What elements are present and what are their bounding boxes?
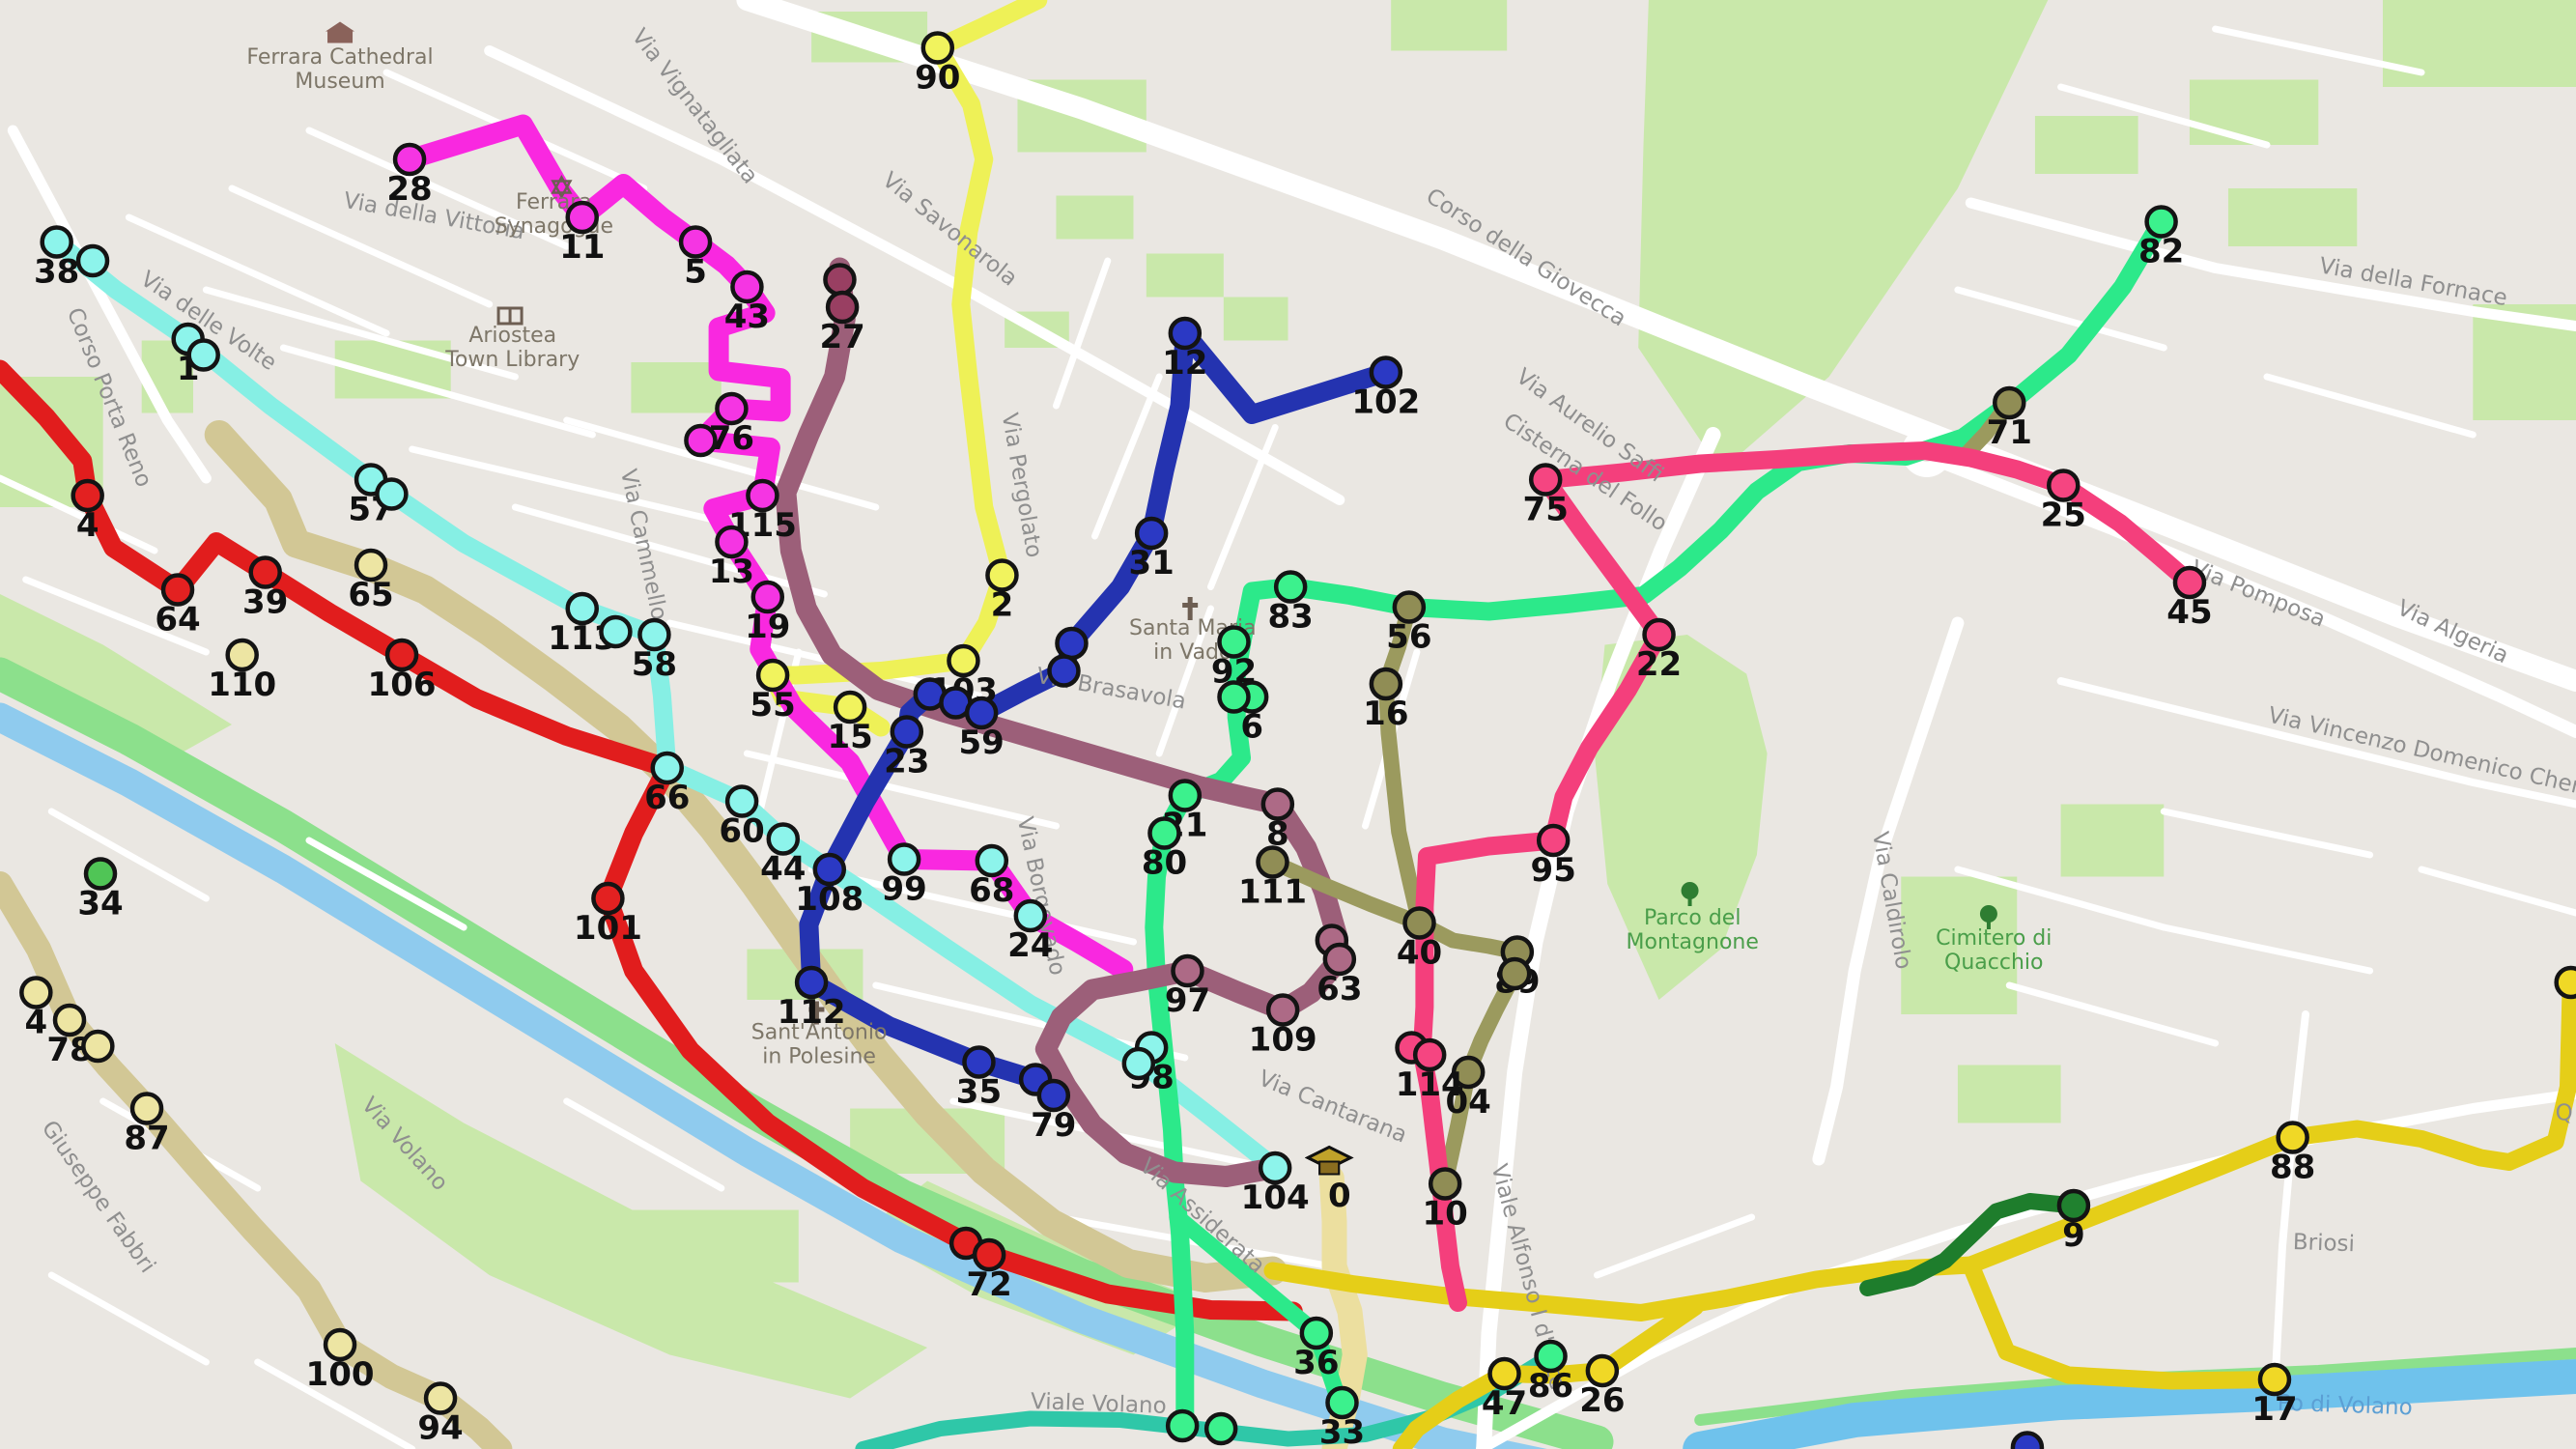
poi-label: Cimitero diQuacchio xyxy=(1936,926,2052,975)
marker-label: 111 xyxy=(1238,873,1307,912)
marker-label: 82 xyxy=(2138,233,2184,271)
marker-label: 63 xyxy=(1316,970,1362,1009)
marker-label: 64 xyxy=(155,601,200,639)
marker-label: 27 xyxy=(819,318,864,356)
marker-label: 22 xyxy=(1636,645,1682,684)
marker-label: 2 xyxy=(991,586,1014,625)
map-marker[interactable] xyxy=(1168,1411,1197,1440)
map-marker[interactable] xyxy=(1057,629,1086,658)
marker-label: 114 xyxy=(1396,1065,1464,1104)
park-area xyxy=(2061,805,2165,877)
marker-label: 59 xyxy=(958,724,1004,762)
marker-label: 95 xyxy=(1531,851,1576,890)
marker-label: 23 xyxy=(884,743,929,781)
marker-label: 26 xyxy=(1579,1381,1625,1420)
marker-label: 39 xyxy=(242,583,288,622)
street-label: Q xyxy=(2556,1101,2573,1126)
marker-label: 15 xyxy=(827,718,872,756)
marker-label: 68 xyxy=(969,871,1014,910)
map-canvas[interactable]: Corso Porta RenoVia delle VolteVia della… xyxy=(0,0,2576,1449)
park-area xyxy=(2383,0,2576,87)
map-marker[interactable] xyxy=(1049,657,1078,686)
marker-label: 28 xyxy=(386,170,432,209)
street-label: Viale Volano xyxy=(1031,1389,1168,1419)
map-marker[interactable] xyxy=(601,617,630,646)
marker-label: 112 xyxy=(778,993,846,1032)
marker-label: 65 xyxy=(348,576,393,614)
marker-label: 31 xyxy=(1128,544,1174,582)
marker-label: 34 xyxy=(77,885,123,923)
marker-label: 86 xyxy=(1528,1367,1573,1406)
park-area xyxy=(1391,0,1507,51)
depot-label: 0 xyxy=(1328,1177,1351,1215)
marker-label: 36 xyxy=(1293,1344,1339,1382)
park-area xyxy=(1958,1065,2061,1123)
marker-label: 11 xyxy=(559,228,605,267)
marker-label: 47 xyxy=(1482,1384,1527,1423)
map-marker[interactable] xyxy=(1206,1414,1235,1443)
marker-label: 4 xyxy=(25,1004,48,1042)
marker-label: 12 xyxy=(1162,344,1207,383)
street-label: Briosi xyxy=(2292,1230,2355,1257)
map-marker[interactable] xyxy=(825,266,854,295)
map-marker-4[interactable]: 4 xyxy=(73,481,102,545)
marker-label: 104 xyxy=(1241,1179,1310,1217)
map-stage: Corso Porta RenoVia delle VolteVia della… xyxy=(0,0,2576,1449)
map-marker[interactable] xyxy=(686,426,715,455)
marker-label: 10 xyxy=(1423,1195,1468,1234)
park-area xyxy=(1146,254,1224,298)
marker-label: 24 xyxy=(1007,926,1053,965)
marker-label: 9 xyxy=(2062,1216,2085,1255)
marker-label: 56 xyxy=(1386,618,1431,657)
park-area xyxy=(2035,116,2138,174)
marker-label: 79 xyxy=(1031,1106,1076,1145)
marker-label: 97 xyxy=(1165,981,1210,1020)
map-marker[interactable] xyxy=(189,341,218,370)
marker-label: 55 xyxy=(750,686,795,724)
marker-label: 99 xyxy=(881,870,926,909)
map-marker[interactable] xyxy=(1500,959,1529,988)
park-area xyxy=(1224,298,1288,341)
map-marker-2[interactable]: 2 xyxy=(987,561,1016,625)
marker-label: 25 xyxy=(2041,497,2086,535)
map-marker[interactable] xyxy=(2557,968,2576,997)
marker-label: 35 xyxy=(956,1073,1002,1112)
park-area xyxy=(1056,196,1133,240)
marker-label: 87 xyxy=(124,1120,169,1158)
marker-label: 108 xyxy=(795,880,863,919)
map-marker[interactable] xyxy=(1124,1049,1153,1078)
marker-label: 60 xyxy=(719,812,764,851)
marker-label: 4 xyxy=(76,506,99,545)
marker-label: 106 xyxy=(368,666,437,704)
marker-label: 72 xyxy=(966,1265,1011,1304)
marker-label: 19 xyxy=(745,608,790,646)
map-marker[interactable] xyxy=(2013,1434,2042,1449)
marker-label: 6 xyxy=(1240,708,1263,747)
map-marker[interactable] xyxy=(78,246,107,275)
marker-label: 80 xyxy=(1142,844,1187,883)
park-area xyxy=(2190,80,2318,146)
map-marker[interactable] xyxy=(83,1032,112,1061)
poi-label: Parco delMontagnone xyxy=(1627,906,1759,954)
marker-label: 8 xyxy=(1266,815,1289,854)
marker-label: 16 xyxy=(1363,695,1408,733)
marker-label: 110 xyxy=(208,666,276,704)
marker-label: 94 xyxy=(417,1409,463,1448)
map-marker[interactable] xyxy=(377,480,406,509)
marker-label: 90 xyxy=(915,59,960,98)
marker-label: 17 xyxy=(2251,1390,2297,1429)
park-area xyxy=(2228,188,2357,246)
map-marker-8[interactable]: 8 xyxy=(1263,790,1292,854)
map-marker-9[interactable]: 9 xyxy=(2059,1191,2088,1255)
marker-label: 83 xyxy=(1268,598,1314,637)
marker-label: 101 xyxy=(574,909,642,948)
marker-label: 71 xyxy=(1987,413,2032,452)
marker-label: 33 xyxy=(1319,1413,1365,1449)
marker-label: 88 xyxy=(2270,1149,2315,1187)
marker-label: 38 xyxy=(34,253,79,292)
marker-label: 102 xyxy=(1351,384,1420,422)
marker-label: 58 xyxy=(632,645,677,684)
park-area xyxy=(631,362,721,413)
marker-label: 109 xyxy=(1249,1021,1317,1060)
marker-label: 5 xyxy=(684,253,707,292)
marker-label: 100 xyxy=(306,1355,375,1394)
marker-label: 13 xyxy=(709,553,754,591)
marker-label: 66 xyxy=(644,779,690,817)
marker-label: 43 xyxy=(724,298,770,336)
marker-label: 45 xyxy=(2166,593,2212,632)
marker-label: 75 xyxy=(1523,491,1569,529)
map-marker-5[interactable]: 5 xyxy=(681,228,710,292)
marker-label: 40 xyxy=(1397,934,1442,973)
map-marker[interactable] xyxy=(1219,683,1248,712)
